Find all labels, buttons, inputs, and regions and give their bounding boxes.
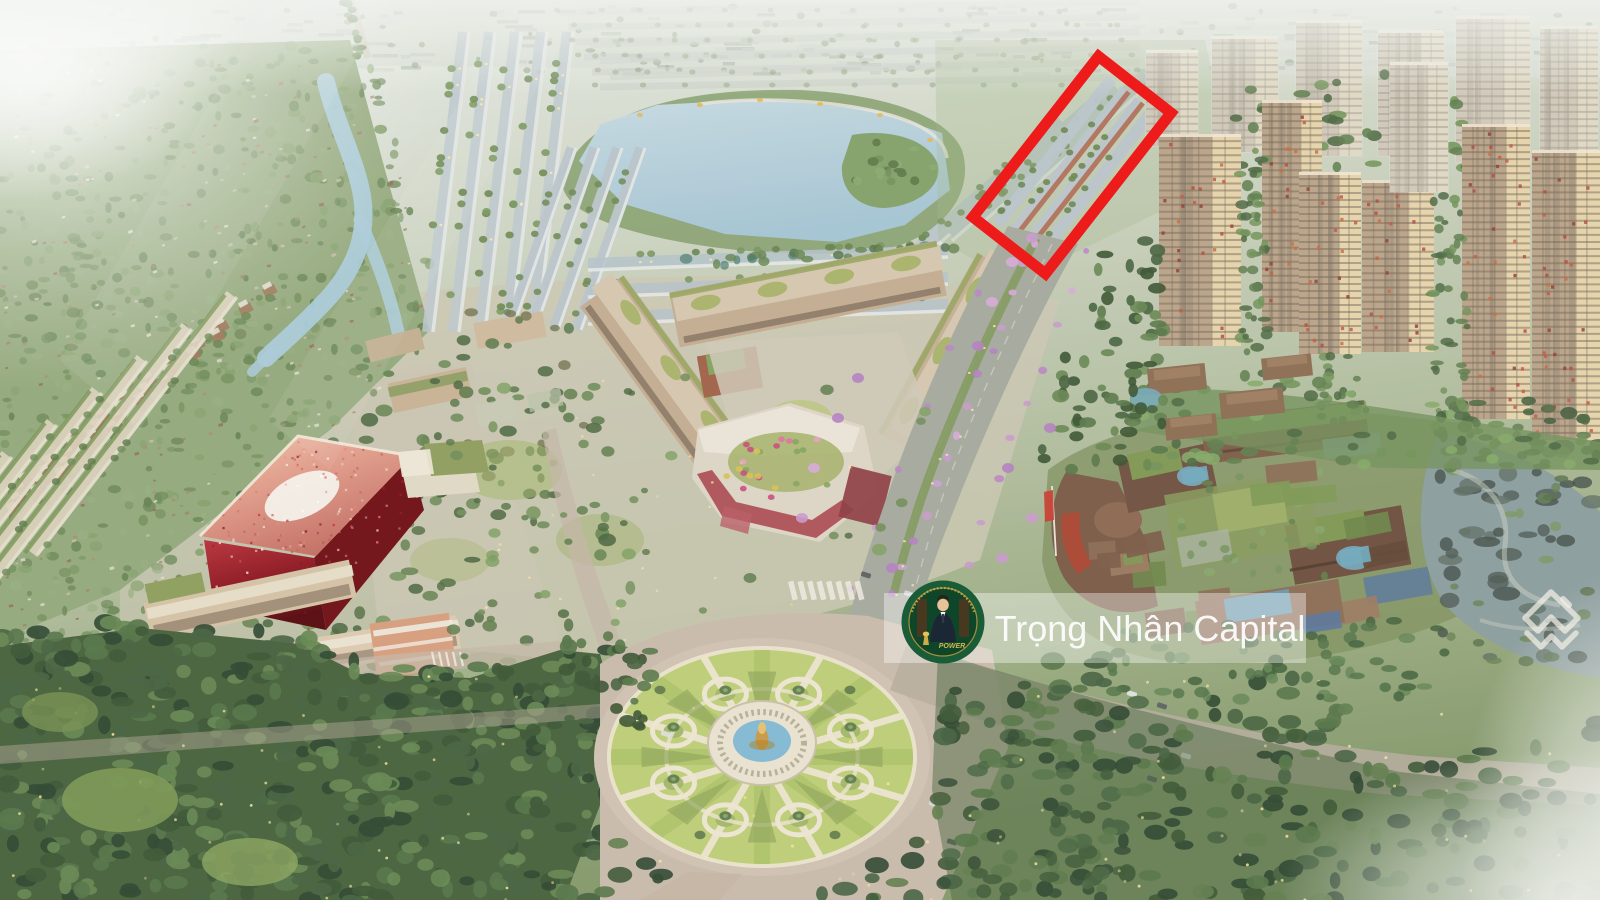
svg-text:POWER: POWER [939,643,965,650]
svg-text:Trọng Nhân Capital: Trọng Nhân Capital [995,608,1306,649]
